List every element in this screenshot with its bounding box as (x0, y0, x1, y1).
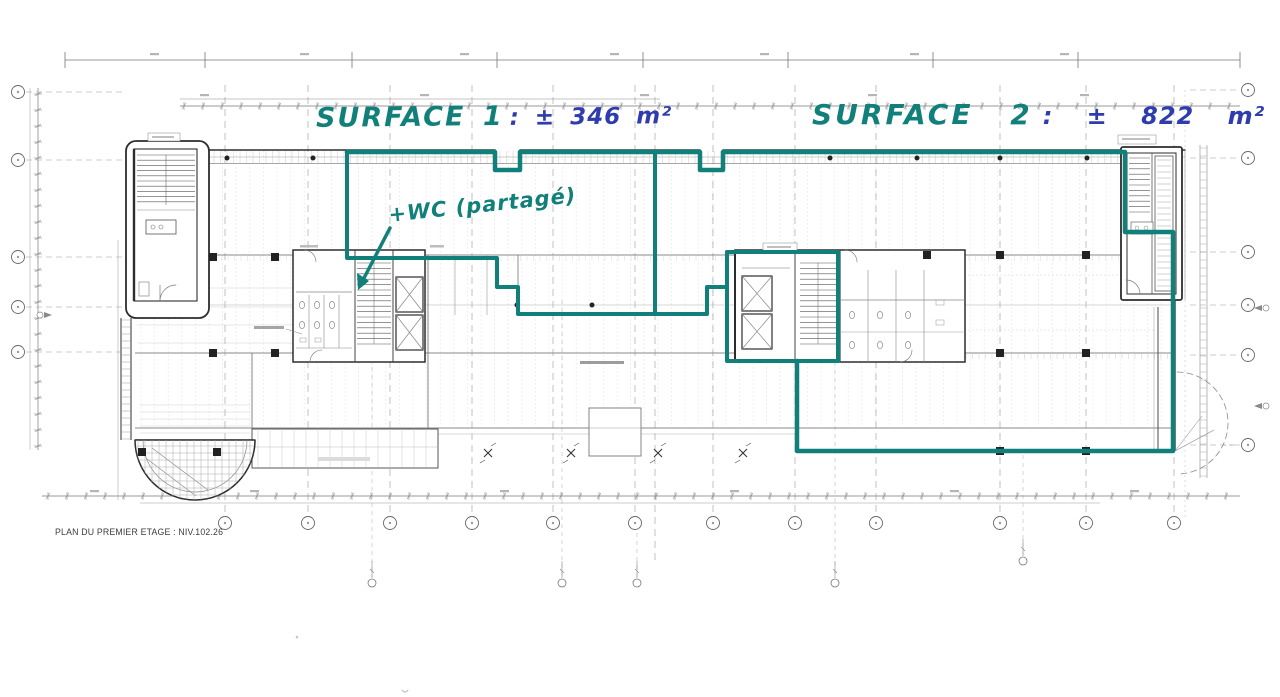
south-details (135, 372, 1240, 500)
column-markers (37, 53, 1269, 692)
surface2-annotation: SURFACE 2: ± 822 m² (812, 98, 1265, 131)
plan-caption: PLAN DU PREMIER ETAGE : NIV.102.26 (55, 527, 223, 537)
surface2-label: SURFACE 2 (812, 98, 1033, 131)
surface2-value: : ± 822 m² (1043, 102, 1265, 130)
left-stairwell (126, 133, 209, 318)
scanned-floor-plan-page: SURFACE 1: ± 346 m² SURFACE 2: ± 822 m² … (0, 0, 1280, 697)
interior-grid-texture (137, 151, 1161, 433)
surface1-annotation: SURFACE 1: ± 346 m² (316, 99, 672, 134)
core1-wc-stairs-lifts (293, 245, 487, 362)
core2-lifts-stairs-wc (735, 243, 965, 362)
surface1-value: : ± 346 m² (510, 103, 673, 131)
surface1-label: SURFACE 1 (316, 101, 504, 134)
